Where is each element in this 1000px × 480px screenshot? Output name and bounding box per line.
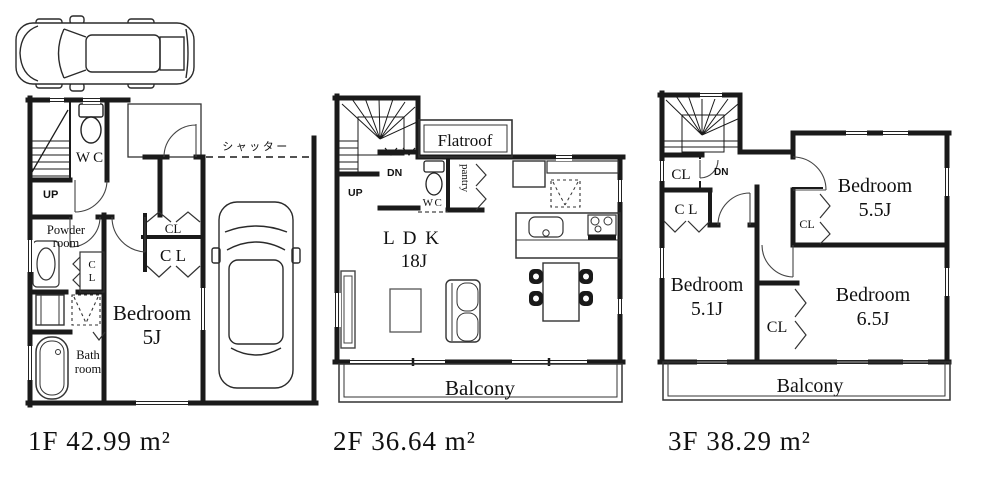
closet-upper-label-1f: CL (165, 221, 182, 236)
powder-room-label-line1: Powder (47, 223, 86, 237)
bathtub-icon (36, 337, 68, 399)
powder-room-label-line2: room (53, 236, 80, 250)
storage-dashed-icon (72, 295, 100, 325)
dining-set-icon (529, 263, 593, 321)
mini-closet-label-l: L (89, 272, 96, 284)
bedroom-size-label-1f: 5J (143, 325, 162, 349)
balcony-label-2f: Balcony (445, 376, 515, 400)
bedroom2-label-3f: Bedroom (671, 275, 744, 296)
ldk-label: L D K (383, 228, 441, 249)
balcony-label-3f: Balcony (777, 375, 844, 397)
mid-closet-label-3f: CL (767, 319, 787, 336)
floor-plan-2f: Flatroof DN UP WC pantry L D K 18J Balco… (330, 0, 640, 420)
sofa-icon (446, 280, 480, 342)
staircase-2f-icon (337, 98, 417, 174)
dn-label-3f: DN (714, 167, 728, 178)
windows-2f (333, 153, 624, 366)
dn-label-2f: DN (387, 167, 402, 179)
closet-lower-label-1f: C L (160, 246, 186, 265)
wc-label-1f: WC (76, 150, 106, 166)
tv-board-icon (341, 271, 355, 348)
staircase-3f-icon (662, 95, 740, 152)
bedroom1-size-label-3f: 5.5J (859, 199, 892, 221)
bedroom2-size-label-3f: 5.1J (691, 299, 723, 320)
bedroom3-size-label-3f: 6.5J (857, 308, 890, 330)
street-car-icon (16, 16, 194, 91)
bedroom3-label-3f: Bedroom (836, 284, 911, 306)
bedroom1-closet-label-3f: CL (799, 217, 814, 231)
floorplan-canvas: WC UP Powder room C L CL C L Bedroom 5J … (0, 0, 1000, 480)
shutter-label: シャッター (222, 140, 290, 153)
toilet-icon (79, 104, 103, 143)
table-icon (390, 289, 421, 332)
staircase-1f-icon (30, 110, 70, 176)
up-label-1f: UP (43, 189, 58, 201)
kitchen-icons (513, 161, 620, 258)
bath-room-label-line2: room (75, 362, 102, 376)
hall-closet2-label-3f: C L (675, 202, 698, 218)
floor-plan-1f: WC UP Powder room C L CL C L Bedroom 5J … (0, 0, 330, 420)
pantry-folding-door (476, 164, 486, 210)
area-label-3f: 3F 38.29 m² (668, 426, 811, 457)
hall-closet-label-3f: CL (671, 167, 690, 183)
pantry-label: pantry (459, 164, 471, 193)
ldk-size-label: 18J (401, 251, 427, 272)
washing-machine-icon (36, 295, 64, 325)
mini-closet-label-c: C (88, 259, 95, 271)
toilet-icon-2f (424, 161, 444, 195)
floor-plan-3f: DN CL C L Bedroom 5.5J CL Bedroom 5.1J C… (650, 0, 1000, 420)
up-label-2f: UP (348, 187, 363, 199)
bedroom-label-1f: Bedroom (113, 301, 191, 325)
bath-room-label-line1: Bath (76, 348, 100, 362)
flatroof-label: Flatroof (438, 131, 493, 150)
area-label-2f: 2F 36.64 m² (333, 426, 476, 457)
garage-car-icon (212, 202, 300, 388)
area-label-1f: 1F 42.99 m² (28, 426, 171, 457)
wc-label-2f: WC (423, 197, 444, 209)
bedroom1-label-3f: Bedroom (838, 175, 913, 197)
